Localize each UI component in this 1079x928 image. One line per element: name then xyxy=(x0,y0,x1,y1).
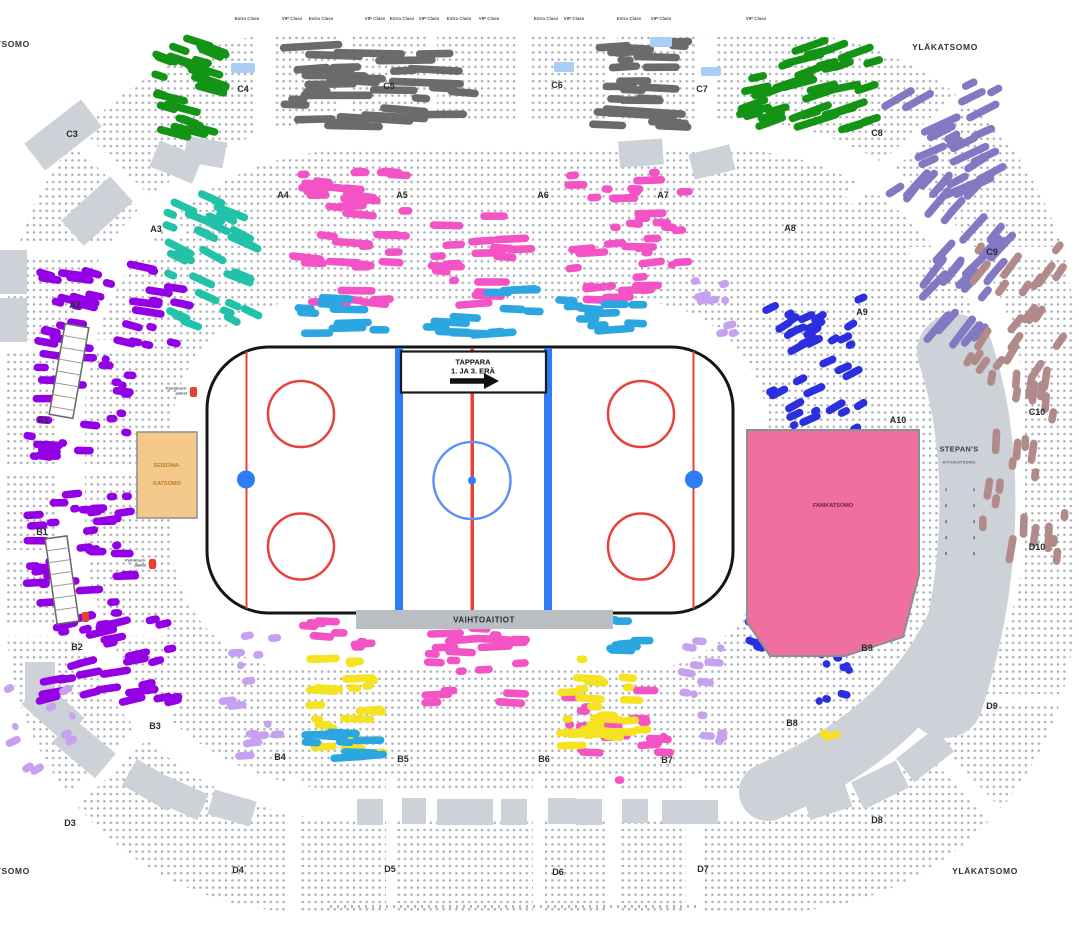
attack-team-label: TAPPARA xyxy=(455,358,490,367)
section-label-a7[interactable]: A7 xyxy=(657,190,669,200)
upper-tier-label-top-left: YLÄKATSOMO xyxy=(0,39,30,49)
upper-tier-label-bottom-right: YLÄKATSOMO xyxy=(952,866,1018,876)
accessible-note-1: Pyörätuoli-paikat xyxy=(166,387,187,396)
section-label-a10[interactable]: A10 xyxy=(890,415,907,425)
stepans-column-b: 1 2 3 4 5 xyxy=(973,482,976,562)
section-label-c5[interactable]: C5 xyxy=(383,81,395,91)
suite-label-5: VIP ClassTerrace xyxy=(365,16,385,21)
section-label-a1[interactable]: A1 xyxy=(37,415,49,425)
suite-label-13: VIP ClassTerrace xyxy=(651,16,671,21)
fan-zone-label: FANIKATSOMO xyxy=(813,503,853,509)
upper-tier-label-top-right: YLÄKATSOMO xyxy=(912,42,978,52)
suite-label-6: Extra ClassTerrace xyxy=(390,16,415,21)
section-label-d8[interactable]: D8 xyxy=(871,815,883,825)
section-label-d10[interactable]: D10 xyxy=(1029,542,1046,552)
benches-label: VAIHTOAITIOT xyxy=(453,616,515,625)
section-label-c3[interactable]: C3 xyxy=(66,129,78,139)
stepans-title: STEPAN'S xyxy=(939,445,978,454)
section-label-d5[interactable]: D5 xyxy=(384,864,396,874)
section-label-b2[interactable]: B2 xyxy=(71,642,83,652)
suite-label-9: VIP ClassTerrace xyxy=(479,16,499,21)
standing-zone-label-line1: SEISOMA- xyxy=(153,463,180,469)
suite-label-11: VIP ClassTerrace xyxy=(564,16,584,21)
seat-map-page: YLÄKATSOMO YLÄKATSOMO YLÄKATSOMO YLÄKATS… xyxy=(0,0,1079,928)
section-label-a3[interactable]: A3 xyxy=(150,224,162,234)
section-label-b1[interactable]: B1 xyxy=(36,527,48,537)
section-label-a8[interactable]: A8 xyxy=(784,223,796,233)
ice-rink xyxy=(207,347,733,629)
suite-label-7: VIP ClassTerrace xyxy=(419,16,439,21)
seat-row-numbers xyxy=(330,905,700,908)
section-label-c4[interactable]: C4 xyxy=(237,84,249,94)
attack-period-label: 1. JA 3. ERÄ xyxy=(451,367,495,376)
upper-tier-label-bottom-left: YLÄKATSOMO xyxy=(0,866,30,876)
standing-zone-label-line2: KATSOMO xyxy=(153,481,181,487)
stepans-subtitle: AITIOKATSOMO xyxy=(942,460,975,465)
suite-label-8: Extra ClassTerrace xyxy=(447,16,472,21)
section-label-b8[interactable]: B8 xyxy=(786,718,798,728)
section-label-a9[interactable]: A9 xyxy=(856,307,868,317)
standing-zone[interactable] xyxy=(137,432,197,518)
section-label-b3[interactable]: B3 xyxy=(149,721,161,731)
suite-label-4: Extra ClassTerrace xyxy=(309,16,334,21)
section-label-d7[interactable]: D7 xyxy=(697,864,709,874)
section-label-d6[interactable]: D6 xyxy=(552,867,564,877)
section-label-d4[interactable]: D4 xyxy=(232,865,244,875)
section-label-b5[interactable]: B5 xyxy=(397,754,409,764)
fan-zone[interactable] xyxy=(747,430,919,656)
section-label-a6[interactable]: A6 xyxy=(537,190,549,200)
stepans-column-a: 1 2 3 4 5 xyxy=(945,482,948,562)
suite-label-2: Extra ClassTerrace xyxy=(235,16,260,21)
suite-label-14: VIP ClassTerrace xyxy=(746,16,766,21)
section-label-d3[interactable]: D3 xyxy=(64,818,76,828)
section-label-c8[interactable]: C8 xyxy=(871,128,883,138)
section-label-d9[interactable]: D9 xyxy=(986,701,998,711)
section-label-a5[interactable]: A5 xyxy=(396,190,408,200)
suite-label-3: VIP ClassTerrace xyxy=(282,16,302,21)
section-label-b7[interactable]: B7 xyxy=(661,755,673,765)
section-label-c10[interactable]: C10 xyxy=(1029,407,1046,417)
section-label-a4[interactable]: A4 xyxy=(277,190,289,200)
section-label-c9[interactable]: C9 xyxy=(986,247,998,257)
suite-label-12: Extra ClassTerrace xyxy=(617,16,642,21)
suite-label-10: Extra ClassTerrace xyxy=(534,16,559,21)
section-label-b6[interactable]: B6 xyxy=(538,754,550,764)
section-label-c7[interactable]: C7 xyxy=(696,84,708,94)
section-label-c6[interactable]: C6 xyxy=(551,80,563,90)
section-label-b9[interactable]: B9 xyxy=(861,643,873,653)
accessible-note-2: Pyörätuoli-paikat xyxy=(125,559,146,568)
section-label-a2[interactable]: A2 xyxy=(69,300,81,310)
section-label-b4[interactable]: B4 xyxy=(274,752,286,762)
